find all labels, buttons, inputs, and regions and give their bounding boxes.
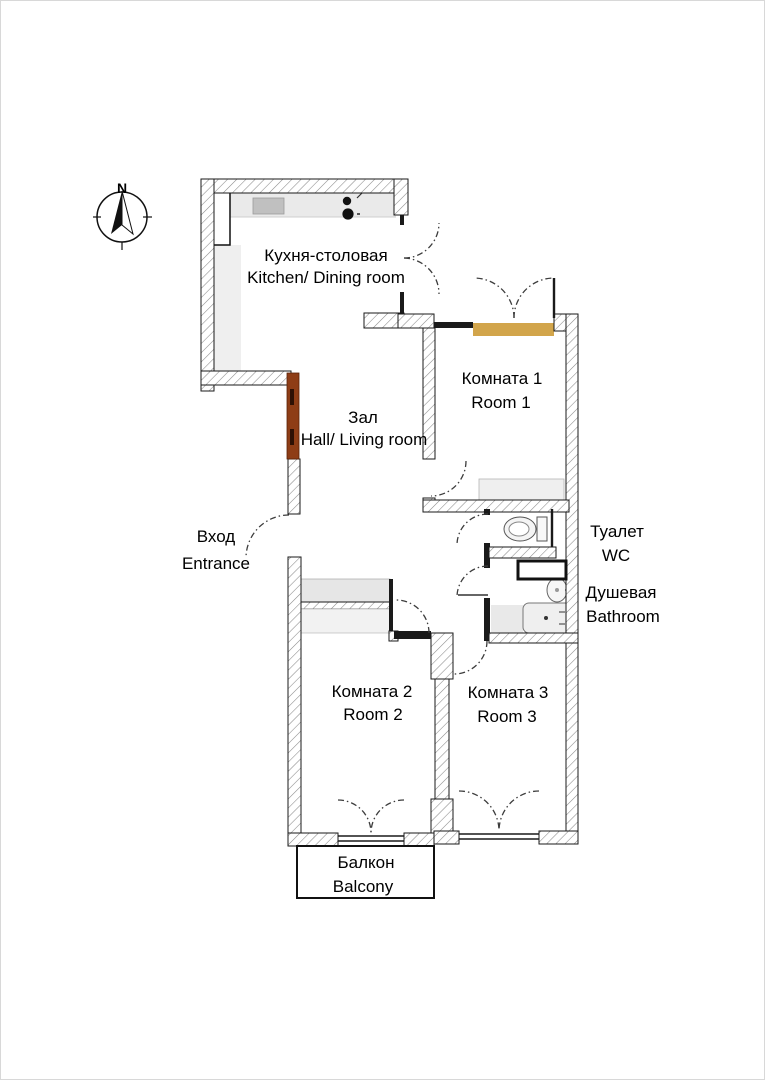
bathroom-label-ru: Душевая bbox=[586, 583, 657, 602]
balcony-label-en: Balcony bbox=[333, 877, 394, 896]
kitchen-side-counter bbox=[214, 245, 241, 373]
wall-room1-bottom bbox=[423, 500, 569, 512]
toilet-icon bbox=[504, 517, 547, 541]
room2-door-arc bbox=[396, 600, 429, 633]
room1-closet bbox=[479, 479, 564, 500]
wall-room1-top-thin bbox=[434, 322, 473, 328]
room3-label-ru: Комната 3 bbox=[468, 683, 549, 702]
hall-label-en: Hall/ Living room bbox=[301, 430, 428, 449]
compass-north-label: N bbox=[117, 180, 127, 196]
wall-room3-bottom-right bbox=[539, 831, 578, 844]
kitchen-sink bbox=[253, 198, 284, 214]
room3-label-en: Room 3 bbox=[477, 707, 537, 726]
kitchen-label-ru: Кухня-столовая bbox=[264, 246, 387, 265]
hall-closet-upper bbox=[299, 579, 390, 603]
wc-label-ru: Туалет bbox=[590, 522, 644, 541]
wall-kitchen-partition-stub-bottom bbox=[400, 292, 404, 314]
wall-divider-middle bbox=[435, 679, 449, 801]
kitchen-label-en: Kitchen/ Dining room bbox=[247, 268, 405, 287]
entrance-label-en: Entrance bbox=[182, 554, 250, 573]
room-labels: Кухня-столовая Kitchen/ Dining room Зал … bbox=[182, 246, 660, 896]
room2-door-threshold-bar bbox=[394, 631, 431, 639]
compass-rose: N bbox=[93, 180, 152, 250]
wall-bath-bottom bbox=[489, 633, 578, 643]
room1-label-ru: Комната 1 bbox=[462, 369, 543, 388]
wall-room2-bottom-right bbox=[404, 833, 434, 846]
wall-kitchen-bottom bbox=[201, 371, 291, 385]
vent-shaft bbox=[518, 561, 566, 579]
wall-room3-bottom-left bbox=[434, 831, 459, 844]
hall-closet-lower bbox=[299, 609, 390, 633]
compass-needle-left bbox=[111, 191, 122, 234]
wall-kitchen-top bbox=[201, 179, 408, 193]
wall-kitchen-right-top bbox=[394, 179, 408, 215]
wall-divider-top bbox=[431, 633, 453, 679]
hall-label-ru: Зал bbox=[348, 408, 378, 427]
kitchen-counter bbox=[214, 193, 396, 217]
room2-label-ru: Комната 2 bbox=[332, 682, 413, 701]
wall-divider-bottom bbox=[431, 799, 453, 835]
room1-door-threshold bbox=[473, 323, 554, 336]
room1-side-door-arc bbox=[431, 461, 466, 496]
room2-balcony-door-arc-left bbox=[338, 800, 371, 833]
room1-label-en: Room 1 bbox=[471, 393, 531, 412]
wc-label-en: WC bbox=[602, 546, 630, 565]
entrance-door-arc bbox=[246, 515, 289, 558]
floor-plan-page: N bbox=[0, 0, 765, 1080]
bathroom-floor bbox=[491, 605, 523, 633]
room3-door-arc bbox=[454, 641, 487, 674]
wall-wc-bottom bbox=[489, 547, 556, 558]
entrance-door-panel bbox=[287, 373, 299, 459]
balcony-label-ru: Балкон bbox=[337, 853, 394, 872]
kitchen-double-door-arc-lower bbox=[404, 258, 439, 294]
wall-left-upper bbox=[288, 459, 300, 514]
wall-left-lower bbox=[288, 557, 301, 846]
room2-balcony-door-arc-right bbox=[371, 800, 404, 833]
bathroom-label-en: Bathroom bbox=[586, 607, 660, 626]
wall-right-outer bbox=[566, 314, 578, 844]
bathtub-icon bbox=[523, 603, 571, 633]
closet-divider-wall bbox=[299, 602, 390, 609]
entrance-label-ru: Вход bbox=[197, 527, 236, 546]
wall-kitchen-partition-stub-top bbox=[400, 215, 404, 225]
room1-entry-door-arc-left bbox=[474, 278, 514, 318]
wc-door-arc bbox=[457, 514, 488, 545]
bathroom-door-arc bbox=[457, 566, 488, 597]
fridge bbox=[213, 191, 230, 245]
kitchen-double-door-arc-upper bbox=[404, 223, 439, 258]
room2-label-en: Room 2 bbox=[343, 705, 403, 724]
wall-room2-bottom-left bbox=[288, 833, 338, 846]
compass-needle-right bbox=[122, 191, 133, 234]
wall-room1-top-left bbox=[398, 314, 434, 328]
hall-closet bbox=[299, 579, 393, 633]
wall-kitchen-left bbox=[201, 179, 214, 391]
room1-entry-door-arc-right bbox=[514, 278, 554, 318]
closet-side-wall bbox=[389, 579, 393, 633]
floor-plan-drawing: N bbox=[1, 1, 765, 1080]
room3-window-door-arc-left bbox=[459, 791, 499, 831]
room3-window-door-arc-right bbox=[499, 791, 539, 831]
